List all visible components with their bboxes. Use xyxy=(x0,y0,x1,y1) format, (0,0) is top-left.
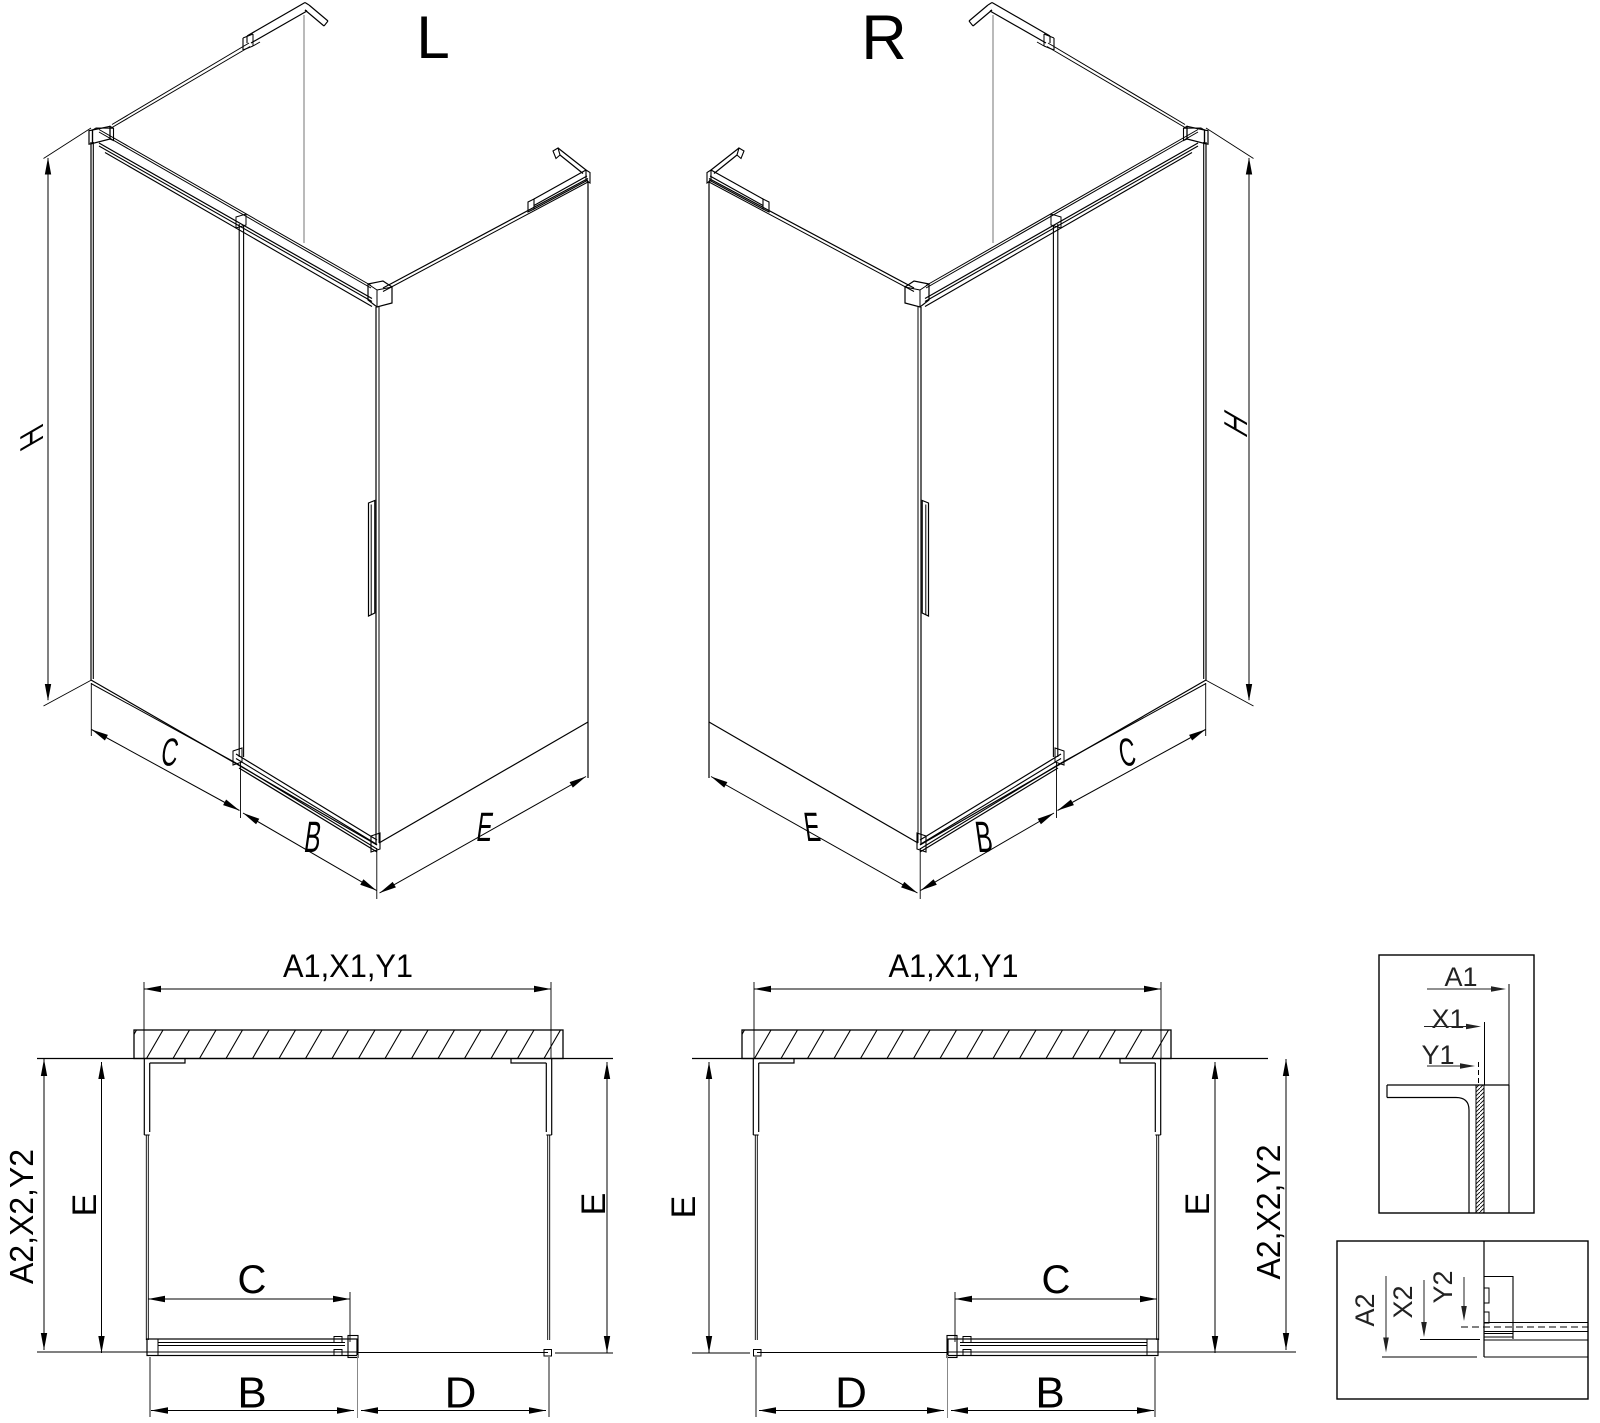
svg-text:X1: X1 xyxy=(1431,1004,1464,1034)
svg-text:A2,X2,Y2: A2,X2,Y2 xyxy=(3,1149,40,1284)
svg-text:B: B xyxy=(237,1369,266,1418)
svg-text:A1,X1,Y1: A1,X1,Y1 xyxy=(889,948,1019,984)
svg-text:Y2: Y2 xyxy=(1428,1270,1458,1303)
svg-text:E: E xyxy=(575,1193,613,1216)
svg-text:X2: X2 xyxy=(1388,1285,1418,1318)
svg-text:C: C xyxy=(238,1258,267,1302)
svg-text:A1,X1,Y1: A1,X1,Y1 xyxy=(283,948,413,984)
svg-text:D: D xyxy=(835,1369,867,1418)
svg-text:C: C xyxy=(1042,1258,1071,1302)
svg-text:A1: A1 xyxy=(1444,962,1477,992)
svg-text:E: E xyxy=(66,1194,104,1217)
svg-text:E: E xyxy=(665,1196,703,1219)
svg-text:D: D xyxy=(445,1369,477,1418)
svg-text:A2: A2 xyxy=(1350,1293,1380,1326)
svg-text:B: B xyxy=(1035,1369,1064,1418)
svg-text:R: R xyxy=(861,3,907,73)
svg-text:E: E xyxy=(1179,1193,1217,1216)
svg-text:A2,X2,Y2: A2,X2,Y2 xyxy=(1250,1145,1287,1280)
svg-text:L: L xyxy=(416,4,449,71)
